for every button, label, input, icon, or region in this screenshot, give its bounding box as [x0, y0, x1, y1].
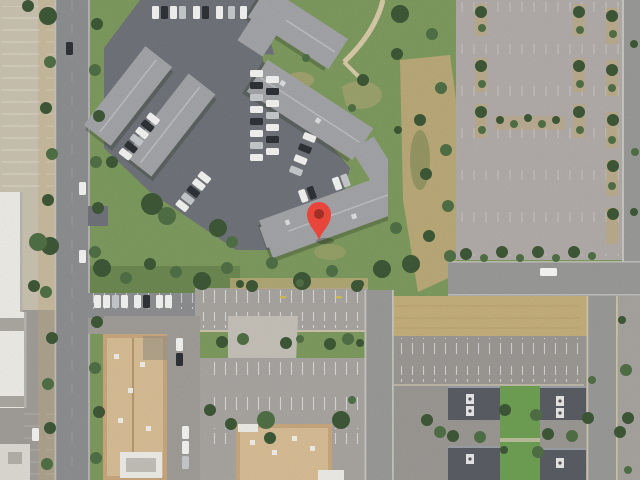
pin-center-dot	[314, 209, 324, 219]
satellite-map-canvas[interactable]	[0, 0, 640, 480]
satellite-map-viewport[interactable]	[0, 0, 640, 480]
